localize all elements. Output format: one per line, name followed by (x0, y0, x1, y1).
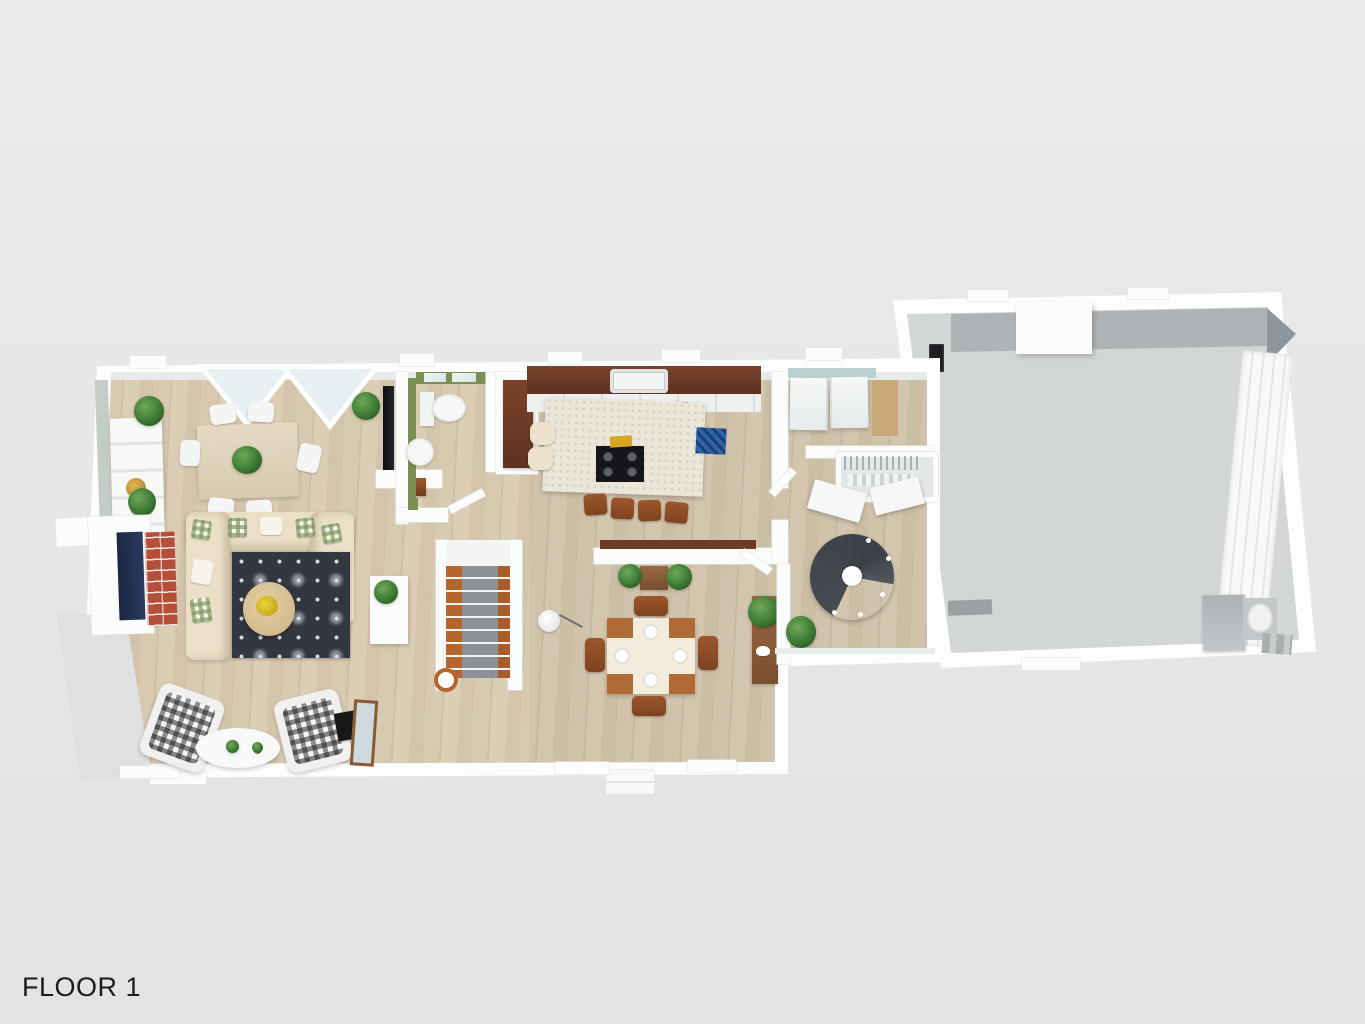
laundry-counter (872, 380, 898, 436)
window-icon (806, 348, 842, 360)
nook-chair (632, 696, 666, 716)
kitchen-sink-icon (610, 369, 668, 393)
window-icon (1128, 288, 1168, 299)
throw-pillow (228, 518, 247, 537)
window-icon (400, 354, 434, 366)
wire-shelf-icon (844, 456, 922, 470)
stair-east-wall (508, 540, 522, 690)
bathroom-south-wall (396, 508, 448, 522)
hall-east-wall-lower (772, 520, 788, 564)
place-setting (643, 672, 659, 688)
plant (786, 616, 816, 648)
stair-handrail (439, 560, 443, 676)
mini-plant (226, 740, 239, 753)
window-icon (662, 350, 700, 362)
window-icon (130, 356, 166, 368)
garage-exterior-stub (1022, 658, 1080, 670)
mudroom-south-face (775, 648, 935, 654)
window-icon (968, 290, 1008, 301)
spiral-baluster (880, 592, 885, 597)
stair-volute (434, 668, 458, 692)
wall-tv-icon (383, 386, 394, 470)
hall-east-wall (772, 372, 788, 488)
plant (374, 580, 398, 604)
staircase-nosing (446, 566, 510, 678)
cooktop-icon (596, 446, 644, 482)
brick-hearth (144, 532, 177, 627)
plant (134, 396, 164, 426)
spiral-baluster (866, 538, 871, 543)
spiral-baluster (886, 556, 891, 561)
storage-cabinet (1016, 302, 1092, 354)
place-setting (672, 648, 688, 664)
throw-pillow (260, 517, 282, 535)
bathroom-sink-icon (406, 438, 434, 466)
place-setting (643, 624, 659, 640)
furnace (1203, 595, 1246, 652)
table-centerpiece-plant (232, 446, 262, 474)
nook-chair (698, 636, 718, 670)
window-icon (120, 766, 180, 778)
throw-pillow (190, 558, 214, 585)
bar-stool (664, 501, 689, 524)
throw-pillow (295, 517, 316, 538)
cereal-box (610, 435, 633, 448)
place-setting (614, 648, 630, 664)
plant (128, 488, 156, 516)
leaning-mirror (350, 699, 379, 767)
barrel-chair (528, 447, 553, 470)
dryer-icon (830, 377, 869, 429)
window-icon (548, 352, 582, 364)
window-icon (688, 760, 736, 772)
floor-lamp-icon (538, 610, 560, 632)
fireplace-firebox (116, 532, 145, 621)
front-steps (606, 770, 654, 796)
nook-wall-ledge (600, 540, 756, 549)
nook-chair (585, 638, 605, 672)
dining-chair (247, 401, 274, 423)
bathroom-window (452, 373, 476, 382)
throw-pillow (191, 519, 212, 540)
bar-stool (610, 497, 634, 519)
side-stoop (55, 517, 88, 547)
plant (748, 596, 780, 628)
washer-icon (790, 378, 829, 431)
floorplan-render: FLOOR 1 (0, 0, 1365, 1024)
bar-stool (638, 500, 662, 522)
bathroom-window (424, 373, 446, 382)
nook-chair (634, 596, 668, 616)
window-icon (555, 762, 609, 774)
throw-pillow (320, 522, 342, 544)
bathroom-green-stub (408, 498, 418, 510)
spiral-baluster (858, 612, 863, 617)
toilet-icon (432, 394, 466, 422)
plant (666, 564, 692, 590)
plant (352, 392, 380, 420)
bar-stool (583, 493, 607, 516)
nook-sideboard (640, 566, 668, 590)
dining-chair (209, 402, 238, 425)
stair-landing (446, 540, 510, 568)
kitchen-rug (695, 427, 726, 455)
yellow-flowers (256, 596, 278, 616)
barrel-chair (530, 422, 555, 445)
plant (618, 564, 642, 588)
water-heater-top (1247, 603, 1273, 633)
throw-pillow (189, 597, 212, 624)
heater-pipes (1261, 633, 1292, 655)
dining-chair (179, 439, 200, 466)
floor-label: FLOOR 1 (22, 972, 141, 1003)
bird-figurine (756, 646, 770, 656)
spiral-center-pole (842, 566, 862, 586)
spiral-baluster (832, 610, 837, 615)
garage-floor-mat-shadow (948, 599, 992, 616)
mini-plant (252, 742, 263, 753)
